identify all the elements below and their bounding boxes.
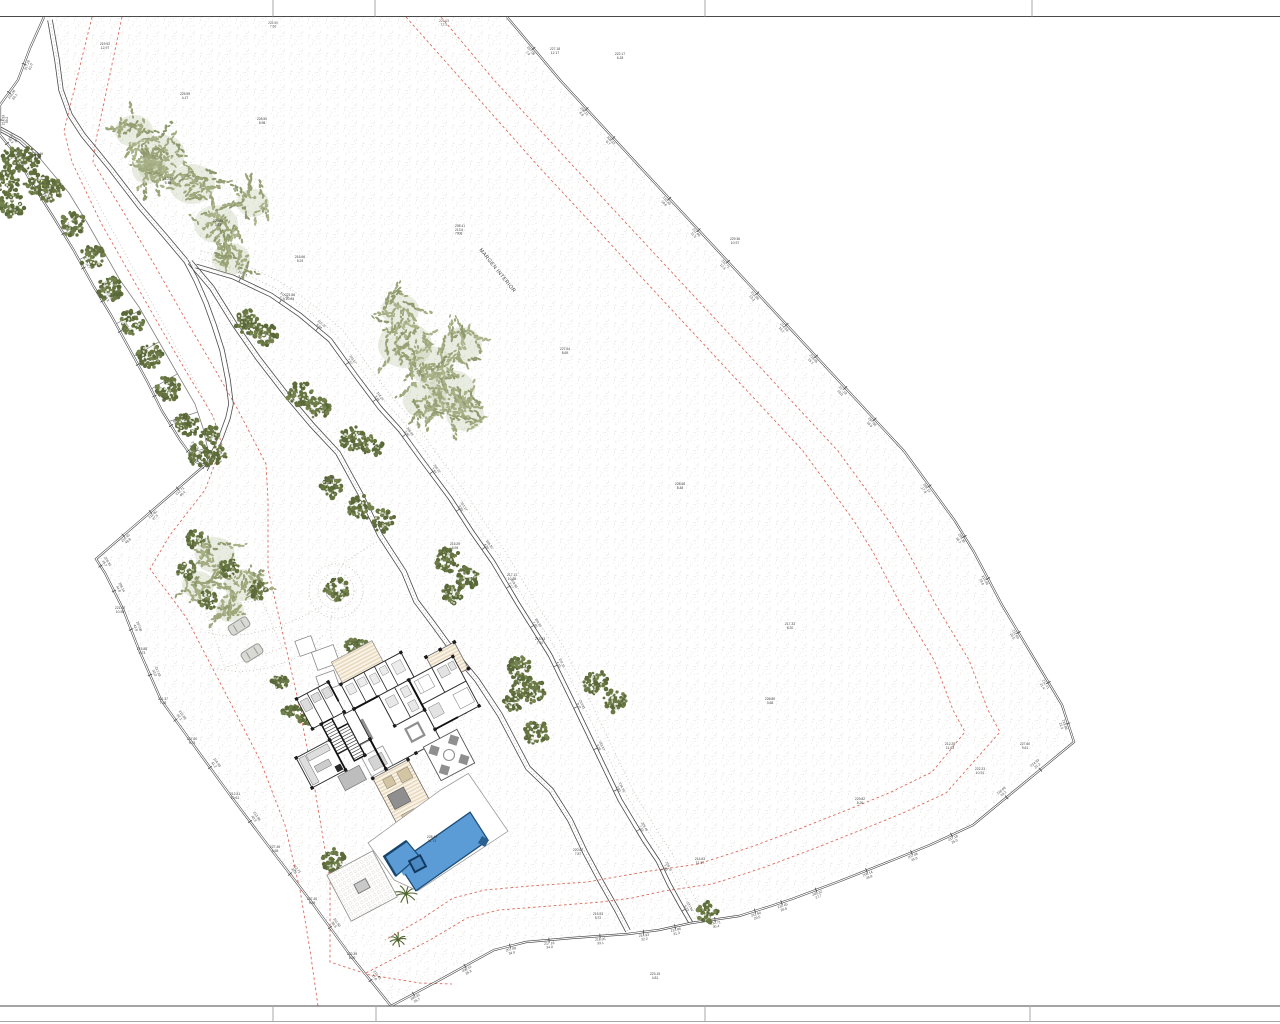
svg-text:32.2: 32.2: [641, 937, 648, 942]
svg-text:33.1: 33.1: [597, 941, 604, 945]
svg-text:34.0: 34.0: [546, 945, 553, 950]
svg-text:59.2: 59.2: [5, 117, 9, 124]
